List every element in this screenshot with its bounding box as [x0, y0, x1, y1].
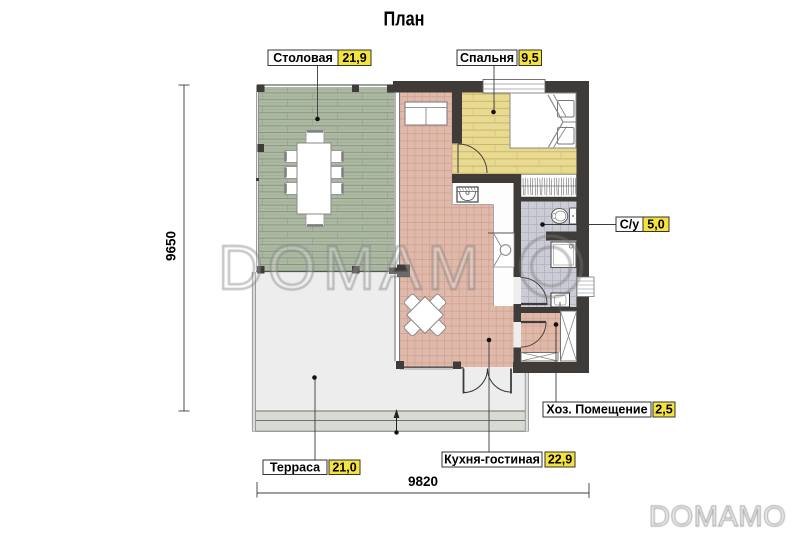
svg-text:Спальня: Спальня: [460, 51, 514, 65]
svg-text:O: O: [268, 234, 316, 303]
svg-text:9650: 9650: [164, 231, 179, 261]
svg-text:21,9: 21,9: [342, 51, 366, 65]
svg-text:D: D: [218, 234, 263, 303]
svg-text:9,5: 9,5: [521, 51, 538, 65]
svg-text:Хоз. Помещение: Хоз. Помещение: [546, 403, 647, 417]
svg-text:Терраса: Терраса: [270, 461, 321, 475]
svg-text:M: M: [428, 234, 480, 303]
svg-text:План: План: [384, 7, 425, 30]
svg-text:Кухня-гостиная: Кухня-гостиная: [444, 453, 540, 467]
svg-text:9820: 9820: [408, 474, 438, 489]
svg-text:22,9: 22,9: [548, 453, 572, 467]
svg-text:Столовая: Столовая: [273, 51, 333, 65]
svg-text:M: M: [323, 234, 375, 303]
svg-text:С/у: С/у: [620, 218, 640, 232]
svg-text:2,5: 2,5: [655, 403, 672, 417]
svg-text:DOMAMO: DOMAMO: [649, 501, 786, 533]
svg-text:21,0: 21,0: [332, 461, 356, 475]
svg-text:5,0: 5,0: [647, 218, 664, 232]
svg-text:A: A: [380, 234, 422, 303]
